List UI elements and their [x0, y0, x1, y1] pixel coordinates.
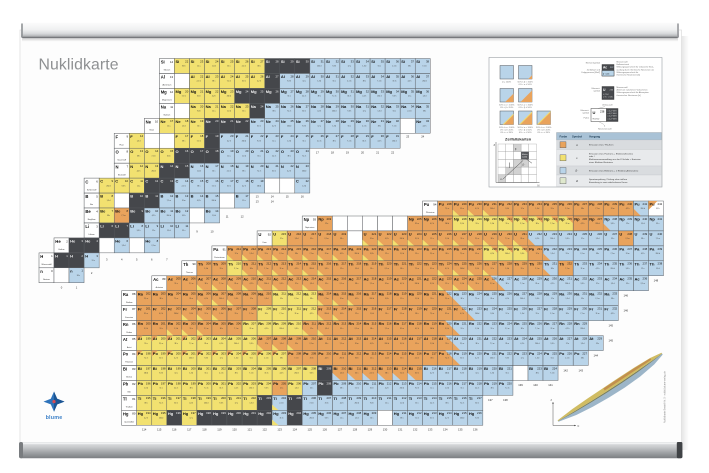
svg-text:Ac: Ac — [514, 276, 520, 281]
svg-text:38 s: 38 s — [265, 313, 268, 315]
svg-text:31 m: 31 m — [310, 358, 314, 360]
svg-text:212: 212 — [281, 277, 286, 281]
svg-text:221: 221 — [432, 292, 437, 296]
svg-text:232: 232 — [612, 307, 617, 311]
svg-text:207: 207 — [281, 351, 286, 355]
svg-text:12: 12 — [140, 164, 144, 168]
svg-text:213: 213 — [402, 381, 407, 385]
svg-text:1,3 d: 1,3 d — [295, 238, 299, 240]
svg-text:222: 222 — [402, 247, 407, 251]
svg-text:Ra: Ra — [529, 291, 535, 296]
svg-text:9,3 h: 9,3 h — [430, 283, 434, 285]
svg-text:Th: Th — [424, 261, 429, 266]
svg-text:1,3 d: 1,3 d — [385, 358, 389, 360]
svg-text:38 s: 38 s — [280, 358, 283, 360]
svg-text:C: C — [236, 179, 239, 184]
svg-text:143: 143 — [578, 368, 583, 372]
svg-text:31 m: 31 m — [189, 298, 193, 300]
svg-text:Mg: Mg — [266, 89, 272, 94]
svg-text:Tl: Tl — [228, 396, 232, 401]
svg-text:Bi: Bi — [379, 366, 383, 371]
svg-text:Si: Si — [161, 60, 165, 65]
svg-text:38 s: 38 s — [536, 373, 539, 375]
svg-text:260 d: 260 d — [257, 185, 261, 187]
svg-text:Ra: Ra — [439, 291, 445, 296]
svg-text:206: 206 — [266, 351, 271, 355]
svg-text:7,1 m: 7,1 m — [550, 223, 555, 225]
svg-text:55 s: 55 s — [295, 343, 298, 345]
svg-text:Pb: Pb — [364, 381, 370, 386]
svg-text:55 s: 55 s — [626, 283, 629, 285]
svg-text:211: 211 — [372, 381, 377, 385]
svg-text:Emission eines Positrons + Ele: Emission eines Positrons + Elektron-Neut… — [589, 152, 634, 155]
svg-text:2,1 m: 2,1 m — [249, 313, 254, 315]
svg-text:1,3 d: 1,3 d — [362, 66, 366, 68]
svg-text:26: 26 — [275, 89, 279, 93]
svg-text:213: 213 — [296, 277, 301, 281]
svg-text:219: 219 — [477, 366, 482, 370]
svg-text:18: 18 — [245, 179, 249, 183]
svg-text:Bi: Bi — [228, 366, 232, 371]
svg-text:55 s: 55 s — [551, 358, 554, 360]
svg-text:9,3 h: 9,3 h — [566, 238, 570, 240]
svg-text:Ne: Ne — [221, 119, 227, 124]
svg-text:225: 225 — [462, 262, 467, 266]
svg-text:234: 234 — [612, 277, 617, 281]
svg-text:Tl: Tl — [469, 396, 473, 401]
svg-text:238: 238 — [643, 247, 648, 251]
svg-text:Rn: Rn — [394, 321, 400, 326]
svg-text:202: 202 — [266, 411, 271, 415]
svg-text:202: 202 — [206, 351, 211, 355]
svg-text:260 d: 260 d — [279, 328, 283, 330]
svg-text:260 d: 260 d — [340, 358, 344, 360]
svg-text:260 d: 260 d — [355, 403, 359, 405]
svg-text:55 s: 55 s — [227, 66, 230, 68]
svg-text:Tl: Tl — [288, 396, 292, 401]
svg-text:Pb: Pb — [168, 381, 174, 386]
svg-text:23: 23 — [290, 149, 294, 153]
svg-text:208: 208 — [327, 381, 332, 385]
svg-text:2,1 m: 2,1 m — [595, 298, 600, 300]
svg-text:Al: Al — [356, 74, 360, 79]
svg-text:55 s: 55 s — [393, 111, 396, 113]
svg-text:At: At — [544, 336, 549, 341]
svg-text:Ac: Ac — [273, 276, 279, 281]
svg-text:260 d: 260 d — [144, 373, 148, 375]
svg-text:9,3 h: 9,3 h — [295, 328, 299, 330]
svg-text:At: At — [213, 336, 218, 341]
svg-text:27: 27 — [321, 119, 325, 123]
svg-text:207: 207 — [327, 396, 332, 400]
svg-text:9,3 h: 9,3 h — [122, 185, 126, 187]
svg-text:Pb: Pb — [303, 381, 309, 386]
svg-text:9,3 h: 9,3 h — [355, 358, 359, 360]
svg-text:Bismut: Bismut — [126, 376, 132, 379]
svg-text:12 a: 12 a — [340, 268, 343, 270]
svg-text:Th: Th — [334, 261, 339, 266]
svg-text:221: 221 — [477, 336, 482, 340]
svg-text:209: 209 — [221, 262, 226, 266]
svg-text:7,1 m: 7,1 m — [656, 238, 661, 240]
svg-text:204: 204 — [281, 396, 286, 400]
svg-text:9,3 h: 9,3 h — [137, 230, 141, 232]
svg-text:Np: Np — [589, 217, 595, 222]
svg-text:38 s: 38 s — [295, 253, 298, 255]
svg-text:31 m: 31 m — [520, 238, 524, 240]
svg-text:29: 29 — [336, 104, 340, 108]
svg-text:203: 203 — [161, 292, 166, 296]
svg-text:204: 204 — [236, 351, 241, 355]
svg-text:206: 206 — [281, 366, 286, 370]
svg-text:12 a: 12 a — [475, 373, 478, 375]
svg-text:Al: Al — [386, 74, 390, 79]
svg-text:7,1 m: 7,1 m — [505, 238, 510, 240]
svg-text:Bi: Bi — [318, 366, 322, 371]
svg-text:Np: Np — [304, 217, 310, 222]
svg-text:207: 207 — [296, 366, 301, 370]
svg-text:85: 85 — [132, 337, 136, 341]
svg-text:260 d: 260 d — [490, 208, 494, 210]
svg-text:Tl: Tl — [409, 396, 413, 401]
svg-text:N: N — [578, 425, 580, 428]
svg-text:At: At — [394, 336, 399, 341]
svg-text:O: O — [161, 149, 164, 154]
svg-text:15: 15 — [185, 164, 189, 168]
svg-text:132: 132 — [413, 428, 418, 432]
svg-text:12 a: 12 a — [521, 358, 524, 360]
svg-text:O: O — [251, 149, 254, 154]
svg-text:15: 15 — [286, 195, 289, 199]
svg-text:N: N — [538, 184, 540, 188]
svg-text:1,3 d: 1,3 d — [310, 283, 314, 285]
svg-text:200: 200 — [146, 322, 151, 326]
svg-text:233: 233 — [537, 217, 542, 221]
svg-text:26: 26 — [306, 119, 310, 123]
svg-text:205: 205 — [206, 307, 211, 311]
svg-text:Francium: Francium — [125, 316, 133, 319]
svg-text:23: 23 — [406, 135, 409, 139]
svg-text:Li: Li — [145, 224, 149, 229]
svg-text:19: 19 — [230, 149, 234, 153]
svg-text:20: 20 — [361, 151, 364, 155]
svg-text:214: 214 — [327, 292, 332, 296]
svg-text:Th: Th — [213, 261, 218, 266]
svg-text:U: U — [499, 232, 502, 237]
svg-text:Bi: Bi — [424, 366, 428, 371]
svg-text:Ne: Ne — [356, 119, 362, 124]
svg-text:Ra: Ra — [484, 291, 490, 296]
svg-text:21: 21 — [245, 134, 249, 138]
svg-text:215: 215 — [296, 247, 301, 251]
svg-text:Be: Be — [206, 209, 212, 214]
svg-text:B: B — [206, 194, 209, 199]
svg-text:9,3 h: 9,3 h — [490, 313, 494, 315]
svg-text:222: 222 — [447, 292, 452, 296]
svg-text:Ne: Ne — [341, 119, 347, 124]
svg-text:1,3 d: 1,3 d — [611, 283, 615, 285]
svg-text:Tl: Tl — [243, 396, 247, 401]
svg-text:12 a: 12 a — [506, 313, 509, 315]
svg-text:N: N — [296, 164, 299, 169]
svg-text:260 d: 260 d — [445, 223, 449, 225]
svg-text:7,1 m: 7,1 m — [355, 388, 360, 390]
svg-text:4,2 h: 4,2 h — [475, 358, 479, 360]
svg-text:200: 200 — [236, 411, 241, 415]
svg-text:Th: Th — [318, 261, 323, 266]
svg-text:Po: Po — [243, 351, 249, 356]
svg-text:55 s: 55 s — [656, 223, 659, 225]
svg-text:9,3 h: 9,3 h — [535, 298, 539, 300]
svg-text:B: B — [191, 194, 194, 199]
svg-text:Fr: Fr — [424, 306, 428, 311]
svg-text:27: 27 — [260, 59, 264, 63]
svg-text:H: H — [70, 254, 73, 259]
svg-text:2,1 m: 2,1 m — [317, 141, 322, 143]
svg-text:Pa: Pa — [303, 247, 309, 252]
svg-text:7,1 m: 7,1 m — [121, 215, 126, 217]
svg-text:Ra: Ra — [469, 291, 475, 296]
svg-text:Tl: Tl — [258, 396, 262, 401]
svg-text:2,1 m: 2,1 m — [204, 328, 209, 330]
svg-text:210: 210 — [311, 336, 316, 340]
svg-text:203: 203 — [236, 366, 241, 370]
svg-text:230: 230 — [492, 217, 497, 221]
svg-text:Bi: Bi — [439, 366, 443, 371]
svg-text:260 d: 260 d — [106, 185, 110, 187]
svg-text:Pa: Pa — [544, 247, 550, 252]
svg-text:Rn: Rn — [153, 321, 159, 326]
svg-text:4,2 h: 4,2 h — [159, 313, 163, 315]
svg-text:1,3 d: 1,3 d — [445, 388, 449, 390]
svg-text:38 s: 38 s — [272, 111, 275, 113]
svg-text:17: 17 — [215, 164, 219, 168]
svg-text:32: 32 — [336, 59, 340, 63]
svg-text:208: 208 — [296, 351, 301, 355]
svg-text:10: 10 — [155, 209, 159, 213]
svg-text:31 m: 31 m — [325, 253, 329, 255]
svg-text:U: U — [529, 232, 532, 237]
svg-text:σ 95 · σ 580: σ 95 · σ 580 — [603, 97, 613, 99]
svg-text:12 a: 12 a — [242, 200, 245, 202]
svg-text:Hg: Hg — [288, 411, 294, 416]
svg-text:U: U — [484, 232, 487, 237]
svg-text:224: 224 — [552, 366, 557, 370]
svg-text:223: 223 — [522, 351, 527, 355]
svg-text:232: 232 — [582, 277, 587, 281]
svg-text:9,3 h: 9,3 h — [340, 313, 344, 315]
svg-text:212: 212 — [402, 396, 407, 400]
svg-text:238: 238 — [597, 202, 602, 206]
svg-text:7,1 m: 7,1 m — [565, 268, 570, 270]
svg-text:Pa: Pa — [349, 247, 355, 252]
svg-text:31 m: 31 m — [182, 200, 186, 202]
svg-text:Ra: Ra — [574, 291, 580, 296]
svg-text:Th: Th — [454, 261, 459, 266]
svg-text:At: At — [574, 336, 579, 341]
svg-text:226: 226 — [507, 292, 512, 296]
svg-text:Pu: Pu — [439, 202, 445, 207]
svg-text:9,3 h: 9,3 h — [325, 418, 329, 420]
svg-text:14: 14 — [271, 195, 274, 199]
svg-text:Rn: Rn — [138, 321, 144, 326]
svg-text:Pa: Pa — [379, 247, 385, 252]
svg-text:38 s: 38 s — [408, 66, 411, 68]
svg-text:B: B — [130, 194, 133, 199]
svg-text:55 s: 55 s — [197, 126, 200, 128]
svg-text:93: 93 — [313, 217, 317, 221]
svg-text:31 m: 31 m — [265, 373, 269, 375]
svg-text:Po: Po — [439, 351, 445, 356]
svg-text:N: N — [281, 164, 284, 169]
svg-text:Ra: Ra — [454, 291, 460, 296]
svg-text:Na: Na — [326, 104, 332, 109]
svg-text:Fr: Fr — [183, 306, 187, 311]
svg-text:symbol: symbol — [593, 91, 600, 93]
svg-text:228: 228 — [537, 292, 542, 296]
svg-text:Rn: Rn — [273, 321, 279, 326]
svg-text:Umbauzahl: Umbauzahl — [602, 105, 613, 107]
svg-text:223: 223 — [447, 277, 452, 281]
svg-text:27: 27 — [336, 134, 340, 138]
svg-text:Pu: Pu — [514, 202, 520, 207]
svg-text:230: 230 — [507, 232, 512, 236]
svg-text:Anteil am natürlichen Vorkomme: Anteil am natürlichen Vorkommen — [617, 89, 649, 92]
svg-text:At: At — [499, 336, 504, 341]
svg-text:Tl: Tl — [318, 396, 322, 401]
svg-text:7,1 m: 7,1 m — [400, 373, 405, 375]
svg-text:2,1 m: 2,1 m — [151, 245, 156, 247]
svg-text:Wirkungsquerschnitt für Absorp: Wirkungsquerschnitt für Absorption — [617, 91, 650, 94]
svg-text:At: At — [273, 336, 278, 341]
svg-text:226: 226 — [552, 336, 557, 340]
svg-text:230: 230 — [552, 277, 557, 281]
svg-text:13: 13 — [155, 164, 159, 168]
svg-text:2,1 m: 2,1 m — [641, 283, 646, 285]
svg-text:18: 18 — [215, 149, 219, 153]
svg-text:eines Elektron-Neutrinos: eines Elektron-Neutrinos — [589, 161, 614, 164]
svg-text:229: 229 — [597, 336, 602, 340]
svg-text:12 a: 12 a — [340, 418, 343, 420]
svg-text:224: 224 — [417, 232, 422, 236]
svg-text:Po: Po — [228, 351, 234, 356]
svg-text:Th: Th — [635, 261, 640, 266]
svg-text:Na: Na — [281, 104, 287, 109]
svg-text:201: 201 — [161, 322, 166, 326]
svg-text:31: 31 — [381, 119, 385, 123]
svg-text:Neon: Neon — [150, 130, 155, 132]
svg-text:14: 14 — [155, 149, 159, 153]
svg-text:Rn: Rn — [243, 321, 249, 326]
svg-text:Rn: Rn — [318, 321, 324, 326]
svg-text:34: 34 — [411, 104, 415, 108]
svg-text:Ra: Ra — [153, 291, 159, 296]
svg-text:Ra: Ra — [364, 291, 370, 296]
svg-text:38 s: 38 s — [415, 313, 418, 315]
svg-text:138: 138 — [503, 398, 508, 402]
svg-text:1,3 d: 1,3 d — [505, 268, 509, 270]
svg-text:Ac: Ac — [394, 276, 400, 281]
svg-text:Pa: Pa — [619, 247, 625, 252]
svg-text:4,2 h: 4,2 h — [317, 111, 321, 113]
svg-text:38 s: 38 s — [107, 215, 110, 217]
svg-text:At: At — [469, 336, 474, 341]
svg-text:Th: Th — [574, 261, 579, 266]
svg-text:Ra: Ra — [138, 291, 144, 296]
svg-text:Ra: Ra — [559, 291, 565, 296]
svg-text:B: B — [176, 194, 179, 199]
svg-text:1,3 d: 1,3 d — [535, 208, 539, 210]
svg-text:23: 23 — [200, 59, 204, 63]
svg-text:Rn: Rn — [303, 321, 309, 326]
svg-text:At: At — [258, 336, 263, 341]
svg-text:222: 222 — [477, 322, 482, 326]
svg-text:Po: Po — [454, 351, 460, 356]
svg-text:215: 215 — [432, 381, 437, 385]
svg-text:260 d: 260 d — [249, 388, 253, 390]
svg-text:Al: Al — [341, 74, 345, 79]
svg-text:211: 211 — [387, 396, 392, 400]
svg-text:Magnesium: Magnesium — [162, 100, 172, 102]
svg-text:Neptunium: Neptunium — [305, 226, 315, 229]
svg-text:239: 239 — [658, 247, 663, 251]
svg-text:2,1 m: 2,1 m — [159, 343, 164, 345]
svg-text:Aluminium: Aluminium — [162, 84, 171, 87]
svg-text:7,1 m: 7,1 m — [332, 96, 337, 98]
svg-text:201: 201 — [146, 307, 151, 311]
svg-text:Pb: Pb — [318, 381, 324, 386]
svg-text:260 d: 260 d — [610, 268, 614, 270]
svg-text:218: 218 — [357, 262, 362, 266]
svg-text:Rn: Rn — [183, 321, 189, 326]
svg-text:12 a: 12 a — [363, 111, 366, 113]
svg-text:7,1 m: 7,1 m — [279, 313, 284, 315]
svg-text:9,3 h: 9,3 h — [385, 298, 389, 300]
svg-text:Hg: Hg — [349, 411, 355, 416]
svg-text:Bi: Bi — [484, 366, 488, 371]
svg-text:22: 22 — [306, 179, 310, 183]
svg-text:Ra: Ra — [394, 291, 400, 296]
svg-text:38 s: 38 s — [536, 223, 539, 225]
svg-text:Ac: Ac — [589, 276, 595, 281]
svg-text:Ne: Ne — [296, 119, 302, 124]
svg-text:Rn: Rn — [544, 321, 550, 326]
svg-text:218: 218 — [432, 336, 437, 340]
svg-text:4,2 h: 4,2 h — [219, 343, 223, 345]
svg-text:31 m: 31 m — [430, 418, 434, 420]
svg-text:16: 16 — [200, 164, 204, 168]
svg-text:2,1 m: 2,1 m — [445, 298, 450, 300]
svg-text:2,1 m: 2,1 m — [279, 253, 284, 255]
svg-text:231: 231 — [522, 232, 527, 236]
svg-text:Hg: Hg — [153, 411, 159, 416]
svg-text:7,1 m: 7,1 m — [505, 388, 510, 390]
svg-text:217: 217 — [387, 307, 392, 311]
svg-text:U: U — [288, 232, 291, 237]
svg-text:Be: Be — [115, 209, 121, 214]
svg-text:214: 214 — [342, 307, 347, 311]
svg-text:213: 213 — [342, 322, 347, 326]
svg-text:Po: Po — [318, 351, 324, 356]
svg-text:4,2 h: 4,2 h — [460, 313, 464, 315]
svg-text:Pu: Pu — [574, 202, 580, 207]
svg-text:211: 211 — [282, 292, 287, 296]
svg-text:β⁺: β⁺ — [515, 148, 518, 151]
svg-text:Elektronenumwandlung aus der K: Elektronenumwandlung aus der K-Schale + … — [589, 158, 641, 161]
svg-text:Pa: Pa — [288, 247, 294, 252]
svg-text:12 a: 12 a — [174, 373, 177, 375]
svg-text:211: 211 — [297, 307, 302, 311]
